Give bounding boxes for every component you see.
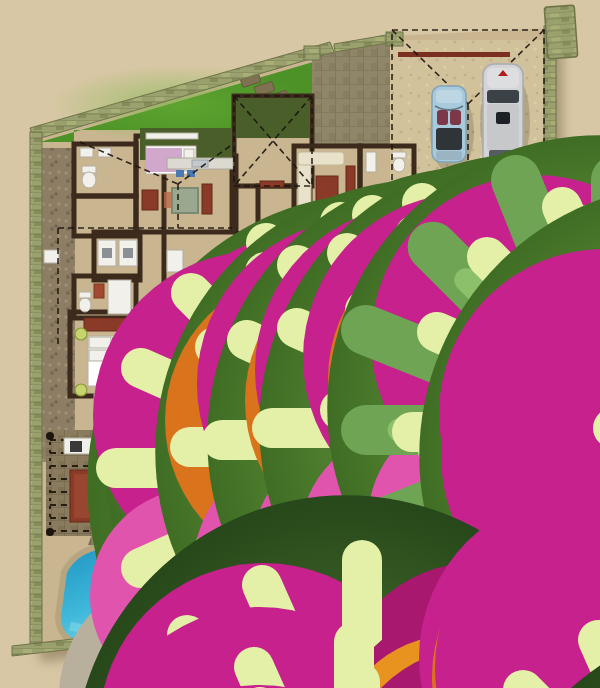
l-sofa-horizontal	[298, 152, 344, 165]
gate-pillar	[304, 46, 320, 60]
dresser	[202, 184, 212, 214]
shower	[366, 152, 376, 172]
stove-burner	[176, 170, 184, 177]
roof	[487, 104, 519, 150]
site-plan-canvas	[0, 0, 600, 688]
shower	[108, 280, 131, 314]
nightstand-lamp	[75, 328, 87, 340]
floor-plan-rendering	[0, 0, 600, 688]
car-seat	[437, 110, 448, 125]
entry-door	[260, 181, 284, 187]
refrigerator	[167, 250, 183, 272]
nightstand-lamp	[75, 384, 87, 396]
kitchen-island	[172, 188, 198, 213]
convertible-car	[432, 86, 466, 162]
window	[146, 133, 198, 139]
windshield	[487, 90, 519, 103]
gravel-path-left	[42, 148, 75, 462]
driveway-paving	[312, 42, 390, 146]
car-seat	[450, 110, 461, 125]
bedroom-chair	[142, 190, 158, 210]
rear-deck	[436, 128, 462, 150]
garden-fixture	[44, 250, 59, 263]
sunroof	[496, 112, 510, 124]
gate-pillar-right	[544, 5, 578, 59]
